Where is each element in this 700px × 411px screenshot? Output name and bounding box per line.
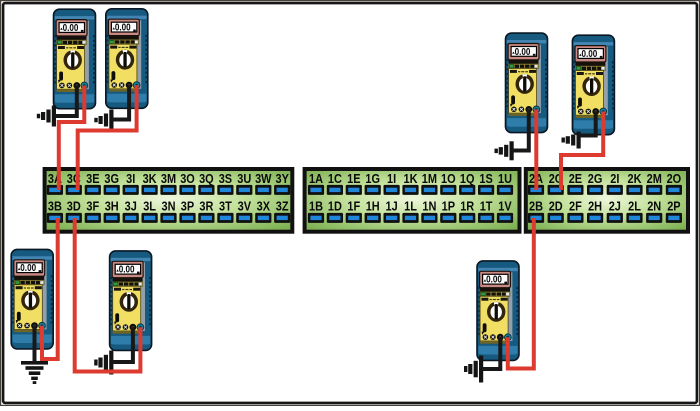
svg-text:1K: 1K [403,171,417,186]
svg-text:1E: 1E [347,171,361,186]
svg-text:3E: 3E [86,171,100,186]
svg-text:1Q: 1Q [460,171,475,186]
svg-text:1B: 1B [309,199,323,214]
svg-text:2B: 2B [529,199,543,214]
svg-text:2G: 2G [588,171,603,186]
svg-text:3O: 3O [180,171,195,186]
svg-text:2H: 2H [588,199,602,214]
svg-text:1H: 1H [366,199,380,214]
svg-text:1O: 1O [441,171,456,186]
svg-text:1M: 1M [422,171,437,186]
svg-text:3S: 3S [219,171,233,186]
svg-text:2P: 2P [667,199,681,214]
svg-text:3V: 3V [238,199,252,214]
svg-text:1U: 1U [498,171,512,186]
svg-text:2D: 2D [549,199,563,214]
svg-text:3I: 3I [126,171,135,186]
svg-text:3D: 3D [67,199,81,214]
svg-text:3Q: 3Q [199,171,214,186]
svg-text:3H: 3H [105,199,119,214]
svg-text:3N: 3N [161,199,175,214]
svg-text:3B: 3B [48,199,62,214]
svg-text:3M: 3M [161,171,176,186]
svg-text:3X: 3X [257,199,271,214]
svg-text:1P: 1P [442,199,456,214]
svg-text:3Z: 3Z [276,199,289,214]
svg-text:3J: 3J [125,199,137,214]
svg-text:3F: 3F [86,199,99,214]
svg-text:1L: 1L [404,199,417,214]
svg-text:2E: 2E [569,171,583,186]
svg-text:1S: 1S [479,171,493,186]
svg-text:1R: 1R [460,199,474,214]
svg-text:3T: 3T [219,199,233,214]
svg-text:1J: 1J [386,199,398,214]
svg-text:1N: 1N [422,199,436,214]
svg-text:3W: 3W [255,171,272,186]
svg-text:3R: 3R [199,199,213,214]
svg-text:1D: 1D [328,199,342,214]
svg-text:3Y: 3Y [275,171,289,186]
svg-text:2L: 2L [628,199,641,214]
svg-text:3P: 3P [181,199,195,214]
svg-text:1T: 1T [480,199,494,214]
svg-text:2K: 2K [627,171,641,186]
svg-text:2O: 2O [667,171,682,186]
svg-text:3U: 3U [237,171,251,186]
svg-text:2N: 2N [647,199,661,214]
svg-text:2I: 2I [610,171,619,186]
svg-text:3K: 3K [143,171,157,186]
svg-text:2F: 2F [569,199,582,214]
svg-text:1A: 1A [309,171,323,186]
svg-text:1I: 1I [387,171,396,186]
svg-text:3L: 3L [143,199,156,214]
svg-text:2M: 2M [647,171,662,186]
svg-text:1F: 1F [347,199,360,214]
svg-text:1V: 1V [498,199,512,214]
svg-text:1G: 1G [365,171,380,186]
svg-text:1C: 1C [328,171,342,186]
svg-text:2J: 2J [609,199,621,214]
svg-text:3G: 3G [104,171,119,186]
